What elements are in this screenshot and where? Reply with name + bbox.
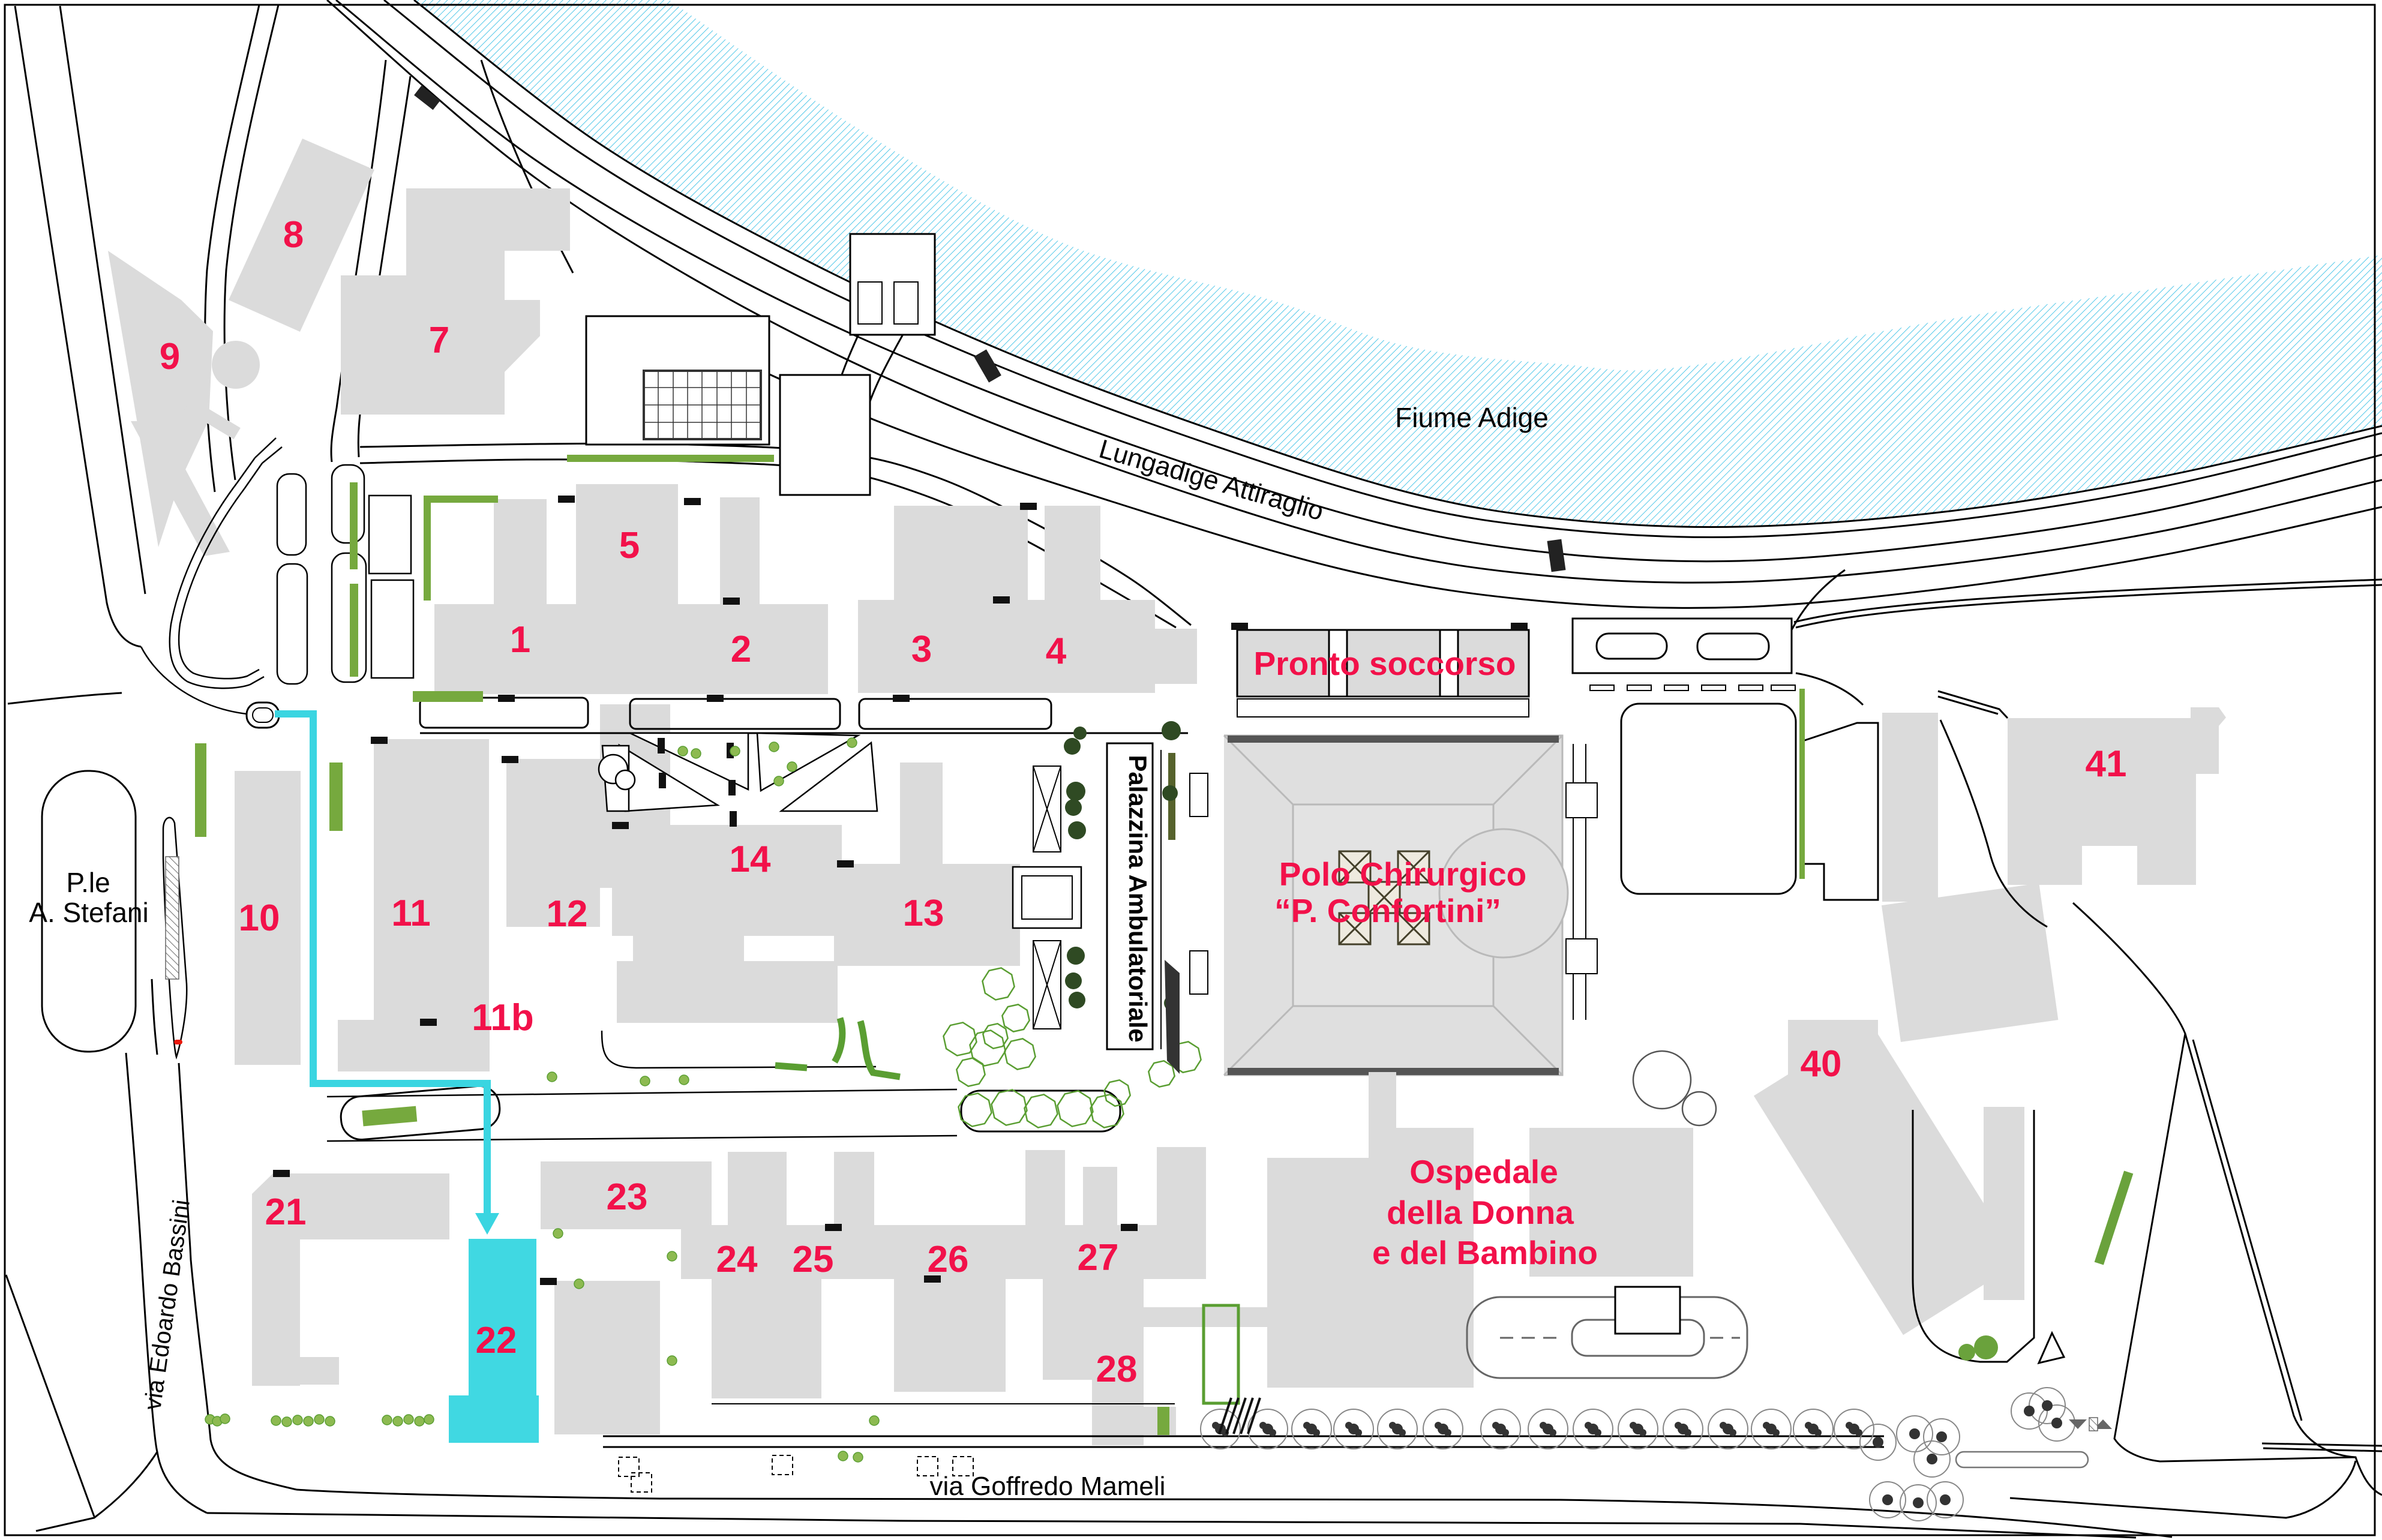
svg-text:5: 5 — [619, 525, 640, 566]
svg-text:Polo Chirurgico: Polo Chirurgico — [1279, 855, 1527, 893]
svg-text:26: 26 — [928, 1239, 969, 1280]
svg-text:8: 8 — [283, 214, 304, 256]
svg-text:40: 40 — [1801, 1043, 1842, 1085]
svg-text:11: 11 — [391, 893, 431, 934]
svg-text:3: 3 — [911, 629, 932, 670]
svg-text:via Goffredo Mameli: via Goffredo Mameli — [930, 1472, 1166, 1501]
svg-text:A. Stefani: A. Stefani — [29, 897, 148, 928]
svg-text:1: 1 — [510, 619, 530, 661]
svg-text:28: 28 — [1096, 1349, 1138, 1390]
svg-text:P.le: P.le — [66, 867, 110, 898]
svg-text:10: 10 — [239, 897, 280, 939]
svg-text:41: 41 — [2086, 743, 2127, 785]
svg-text:9: 9 — [160, 336, 180, 377]
svg-text:Ospedale: Ospedale — [1409, 1153, 1558, 1190]
svg-text:22: 22 — [476, 1320, 517, 1361]
svg-text:14: 14 — [730, 839, 771, 880]
svg-text:21: 21 — [265, 1191, 307, 1233]
svg-text:25: 25 — [793, 1239, 834, 1280]
svg-text:Pronto soccorso: Pronto soccorso — [1253, 645, 1516, 682]
svg-text:24: 24 — [716, 1239, 758, 1280]
svg-text:“P. Confortini”: “P. Confortini” — [1274, 892, 1501, 929]
svg-text:23: 23 — [607, 1176, 648, 1218]
svg-text:13: 13 — [903, 893, 944, 934]
svg-text:Fiume Adige: Fiume Adige — [1395, 402, 1549, 433]
svg-text:4: 4 — [1046, 631, 1067, 672]
svg-text:7: 7 — [429, 320, 449, 361]
svg-text:11b: 11b — [472, 997, 533, 1038]
svg-text:2: 2 — [731, 629, 751, 670]
svg-text:27: 27 — [1078, 1237, 1119, 1278]
svg-text:e del Bambino: e del Bambino — [1372, 1234, 1598, 1271]
svg-text:12: 12 — [547, 893, 588, 935]
svg-text:Palazzina Ambulatoriale: Palazzina Ambulatoriale — [1124, 755, 1152, 1042]
svg-text:della Donna: della Donna — [1387, 1194, 1574, 1231]
